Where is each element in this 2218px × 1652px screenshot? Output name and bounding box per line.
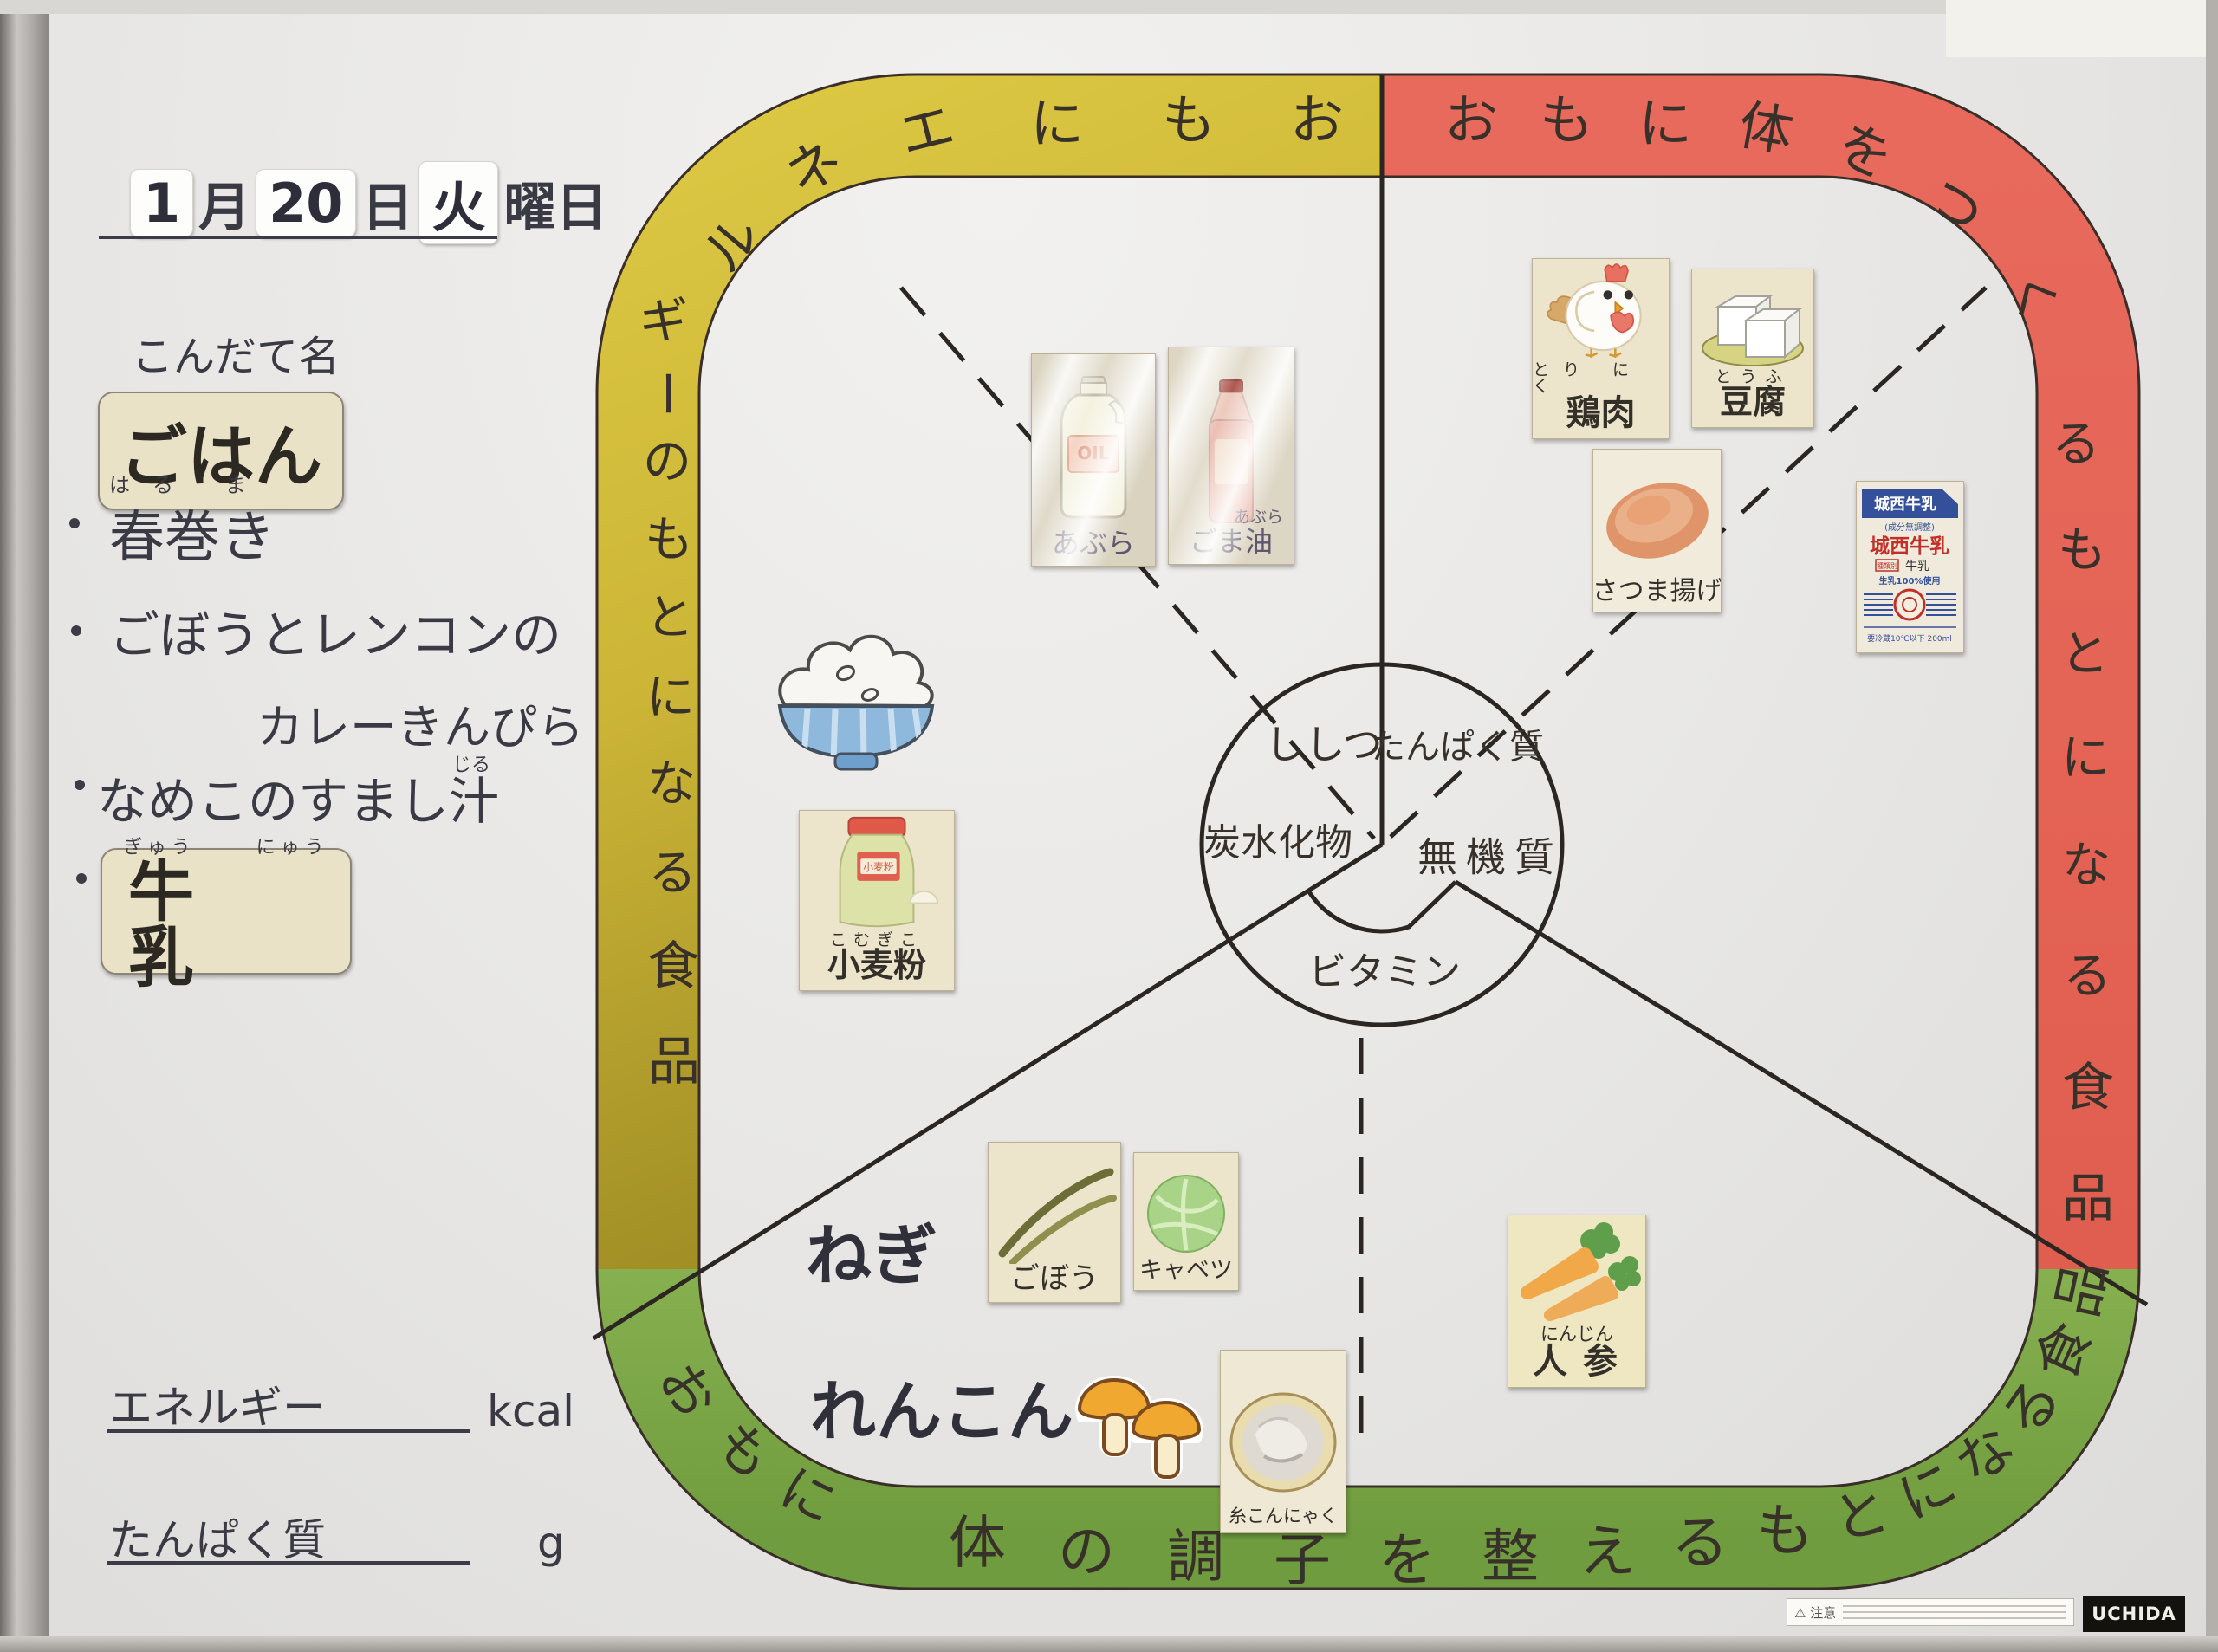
- food-card-label: 小麦粉: [827, 949, 926, 990]
- caution-fine-print: [1843, 1605, 2066, 1619]
- wall-corner: [1946, 0, 2206, 57]
- food-card-label: ごま油: [1190, 528, 1273, 564]
- food-card-label: キャベツ: [1139, 1259, 1233, 1290]
- caution-label: ⚠ 注意: [1787, 1598, 2074, 1626]
- green-band-char: 体: [949, 1513, 1006, 1576]
- green-band-char: る: [1671, 1513, 1728, 1576]
- food-card-gobo: ごぼう: [988, 1142, 1121, 1303]
- food-card-label: 鶏肉: [1566, 395, 1636, 438]
- rice-bowl-icon: [766, 625, 946, 786]
- yellow-band-char: お: [1290, 92, 1344, 151]
- food-card-label: あぶら: [1052, 529, 1135, 566]
- red-band-char: 品: [2062, 1170, 2114, 1228]
- menu-item-soup: なめこのすましじる汁: [97, 761, 499, 833]
- food-card-abura: OIL あぶら: [1031, 353, 1156, 567]
- yellow-band-char: の: [643, 436, 691, 489]
- bullet-dot: [76, 873, 87, 884]
- food-card-satsumaage: さつま揚げ: [1592, 449, 1722, 612]
- whiteboard-photo: ししつ たんぱく質 炭水化物 無機質 ビタミン おもにエネルギーのもとになる食品…: [0, 0, 2218, 1652]
- day-label: 日: [361, 165, 413, 241]
- food-card-milk-carton: 城西牛乳 (成分無調整) 城西牛乳 種類別 牛乳 生乳100%使用 要冷蔵10℃…: [1856, 481, 1964, 653]
- yellow-band-char: 品: [648, 1033, 700, 1091]
- band-yellow: [648, 126, 1382, 1269]
- nutrient-protein: たんぱく質: [1371, 728, 1544, 767]
- yellow-band-char: に: [646, 671, 695, 725]
- food-card-kyabetsu: キャベツ: [1133, 1152, 1239, 1291]
- caution-text: ⚠ 注意: [1794, 1603, 1836, 1622]
- board-frame-left: [0, 0, 49, 1652]
- bullet-dot: [71, 625, 81, 636]
- svg-text:牛乳: 牛乳: [1905, 560, 1929, 573]
- red-band-char: お: [1444, 92, 1498, 151]
- svg-text:OIL: OIL: [1077, 443, 1109, 463]
- green-band-char: も: [1756, 1500, 1813, 1564]
- uchida-logo: UCHIDA: [2083, 1596, 2185, 1632]
- day-number-card: 20: [256, 169, 356, 237]
- carrots-icon: [1508, 1221, 1645, 1325]
- nutrient-carbohydrate: 炭水化物: [1203, 824, 1352, 865]
- nutrient-vitamin: ビタミン: [1308, 951, 1461, 994]
- red-band-char: に: [1638, 95, 1692, 154]
- yellow-band-char: も: [1162, 92, 1216, 151]
- menu-item-text: 春巻き: [109, 506, 276, 570]
- food-card-toriniku: とり にく 鶏肉: [1532, 258, 1670, 439]
- yellow-band-char: も: [645, 514, 693, 567]
- furigana: とり にく: [1533, 362, 1669, 395]
- red-band-char: る: [2063, 950, 2111, 1004]
- menu-heading: こんだて名: [132, 322, 340, 383]
- menu-item-harumaki: はる ま 春巻き: [109, 468, 276, 573]
- date-row: 1 月 20 日 火 曜日: [130, 161, 607, 244]
- red-band-char: る: [2052, 418, 2100, 472]
- oil-bottle-icon: OIL: [1032, 365, 1155, 529]
- menu-item-kinpira-line1: ごぼうとレンコンの: [109, 594, 561, 667]
- menu-item-milk: 牛 乳: [128, 859, 350, 991]
- cabbage-icon: [1134, 1169, 1238, 1259]
- svg-text:種類別: 種類別: [1877, 561, 1897, 570]
- yellow-band-char: と: [645, 592, 694, 645]
- yellow-band-char: な: [647, 758, 696, 812]
- svg-text:城西牛乳: 城西牛乳: [1870, 534, 1949, 558]
- protein-unit: g: [537, 1518, 565, 1568]
- menu-item-milk-card: ぎゅう にゅう 牛 乳: [101, 848, 352, 975]
- food-card-tofu: とうふ 豆腐: [1691, 269, 1814, 428]
- handwritten-renkon: れんこん: [810, 1358, 1073, 1454]
- bullet-dot: [69, 518, 80, 528]
- board-frame-bottom: [0, 1636, 2218, 1652]
- furigana: じる: [452, 749, 490, 777]
- red-band-char: な: [2062, 839, 2111, 893]
- tofu-icon: [1692, 272, 1813, 369]
- red-band-char: に: [2061, 732, 2110, 786]
- yellow-band-char: ギ: [639, 295, 688, 349]
- food-card-label: 人参: [1521, 1344, 1633, 1387]
- nutrient-fat: ししつ: [1265, 723, 1382, 768]
- green-band-char: 調: [1167, 1526, 1224, 1590]
- red-band-char: と: [2060, 628, 2109, 682]
- furigana: にんじん: [1540, 1325, 1613, 1344]
- green-band-char: え: [1579, 1521, 1636, 1584]
- rice-bowl-sticker: [766, 625, 946, 789]
- food-card-label: ごぼう: [1010, 1264, 1099, 1302]
- yellow-band-char: に: [1030, 95, 1084, 154]
- food-card-ninjin: にんじん 人参: [1508, 1215, 1646, 1388]
- weekday-card: 火: [418, 161, 498, 244]
- burdock-icon: [989, 1160, 1120, 1264]
- month-number-card: 1: [130, 169, 193, 237]
- svg-text:小麦粉: 小麦粉: [863, 861, 894, 873]
- mushrooms-sticker: [1064, 1356, 1217, 1498]
- menu-item-text: なめこのすまし: [97, 772, 449, 831]
- date-underline: [99, 236, 497, 239]
- red-band-char: も: [2058, 524, 2106, 578]
- food-card-gomaabura: ごま油 あぶら: [1168, 347, 1294, 565]
- chicken-icon: [1533, 259, 1669, 362]
- energy-unit: kcal: [487, 1386, 574, 1436]
- yellow-band-char: ー: [639, 369, 692, 418]
- nutrient-mineral: 無機質: [1417, 836, 1563, 880]
- mushrooms-icon: [1064, 1356, 1217, 1494]
- svg-text:(成分無調整): (成分無調整): [1884, 522, 1935, 533]
- food-card-label: さつま揚げ: [1592, 578, 1722, 612]
- konnyaku-icon: [1221, 1377, 1346, 1506]
- furigana: あぶら: [1234, 509, 1283, 526]
- protein-blank-line: [107, 1561, 470, 1565]
- svg-text:城西牛乳: 城西牛乳: [1874, 495, 1936, 514]
- milk-carton-icon: 城西牛乳 (成分無調整) 城西牛乳 種類別 牛乳 生乳100%使用 要冷蔵10℃…: [1857, 482, 1963, 652]
- month-label: 月: [198, 165, 250, 241]
- green-band-char: を: [1378, 1530, 1436, 1593]
- bullet-dot: [75, 780, 85, 790]
- board-frame-right: [2206, 0, 2218, 1652]
- menu-item-kinpira-line2: カレーきんぴら: [256, 689, 584, 757]
- svg-text:要冷蔵10℃以下 200ml: 要冷蔵10℃以下 200ml: [1867, 633, 1952, 644]
- energy-label: エネルギー: [109, 1373, 326, 1435]
- green-band-char: 整: [1482, 1526, 1539, 1590]
- food-card-komugiko: 小麦粉 こむぎこ 小麦粉: [799, 810, 955, 991]
- handwritten-negi: ねぎ: [806, 1202, 937, 1298]
- energy-blank-line: [107, 1429, 470, 1433]
- red-band-char: も: [1540, 92, 1593, 151]
- food-card-label: 豆腐: [1720, 385, 1786, 427]
- board-frame-top: [0, 0, 2218, 14]
- food-card-label-text: ごま油: [1190, 525, 1273, 558]
- protein-label: たんぱく質: [109, 1506, 326, 1568]
- sesame-oil-bottle-icon: [1169, 366, 1294, 528]
- yellow-band-char: 食: [647, 938, 699, 995]
- red-band-char: 食: [2062, 1059, 2114, 1117]
- fried-fishcake-icon: [1593, 463, 1721, 578]
- furigana: はる ま: [109, 468, 276, 498]
- weekday-suffix: 曜日: [503, 165, 607, 241]
- furigana: にゅう: [256, 832, 329, 859]
- yellow-band-char: る: [648, 847, 697, 901]
- green-band-char: の: [1058, 1521, 1115, 1584]
- svg-text:生乳100%使用: 生乳100%使用: [1879, 575, 1941, 586]
- caution-word: 注意: [1810, 1605, 1836, 1621]
- food-card-label: 糸こんにゃく: [1229, 1506, 1338, 1532]
- green-band-char: 子: [1274, 1530, 1331, 1593]
- menu-item-text: 汁: [449, 772, 499, 831]
- food-card-konnyaku: 糸こんにゃく: [1220, 1350, 1346, 1533]
- flour-bag-icon: 小麦粉: [800, 811, 954, 932]
- red-band-char: 体: [1735, 96, 1798, 164]
